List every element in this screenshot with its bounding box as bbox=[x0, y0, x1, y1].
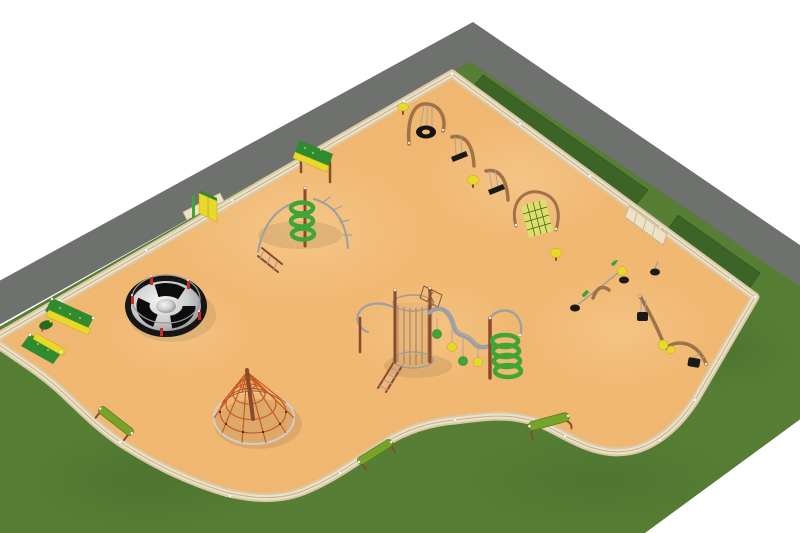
playground-scene bbox=[0, 0, 800, 533]
playground-render bbox=[0, 0, 800, 533]
